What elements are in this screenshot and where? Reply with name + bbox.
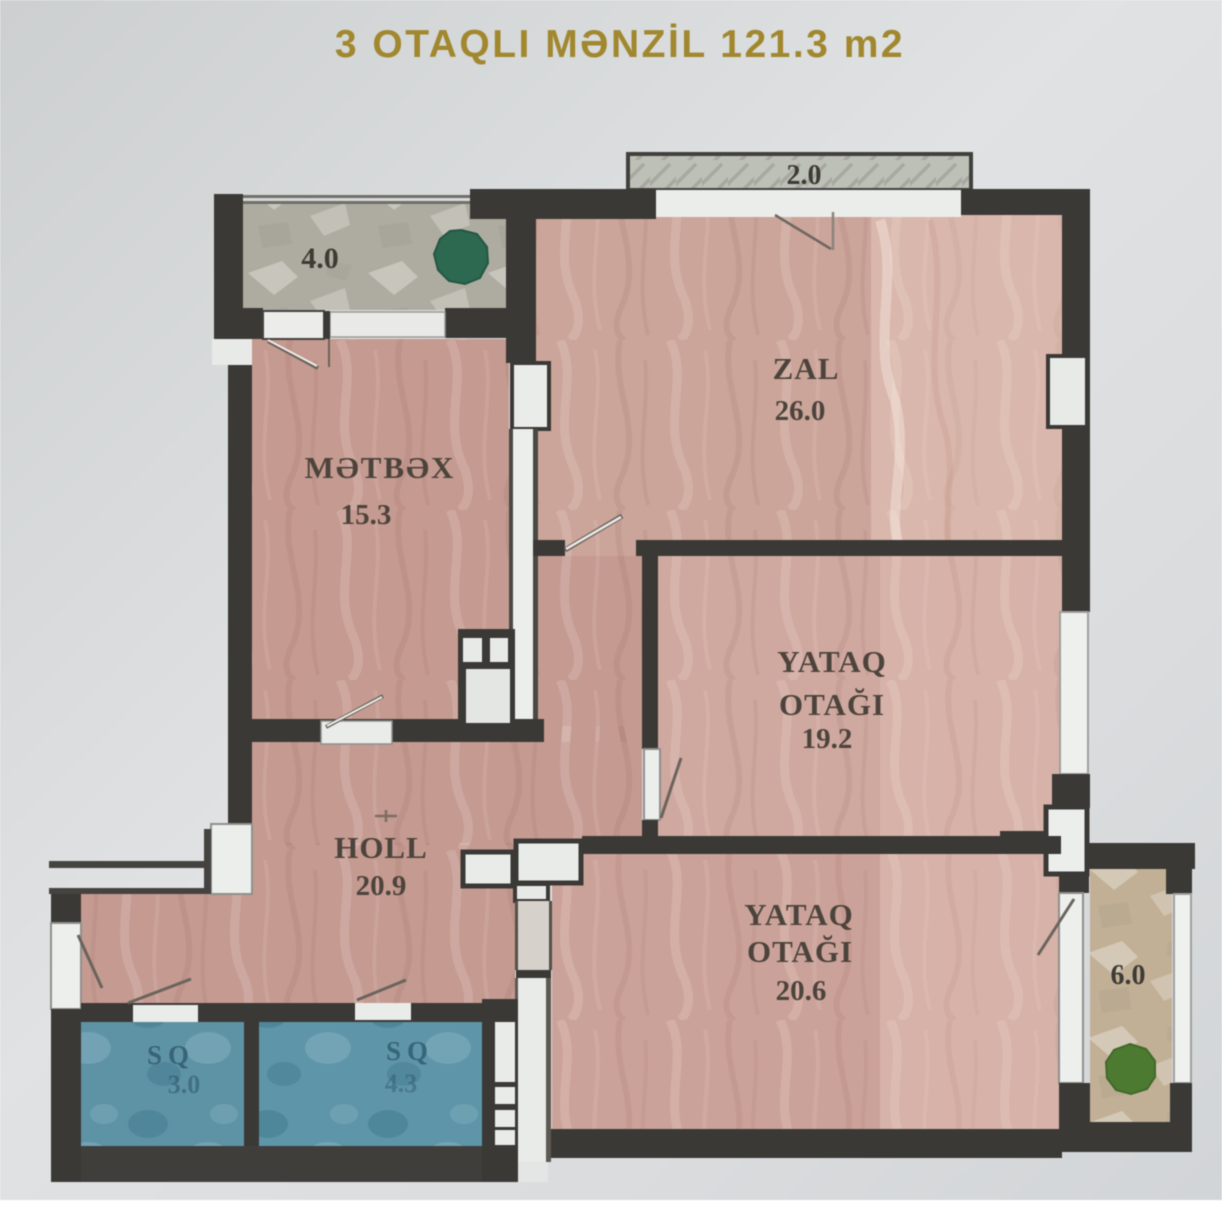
svg-text:4.3: 4.3: [385, 1069, 418, 1098]
svg-text:19.2: 19.2: [802, 723, 853, 755]
svg-text:6.0: 6.0: [1111, 960, 1146, 991]
svg-text:3.0: 3.0: [168, 1070, 201, 1099]
svg-text:MƏTBƏX: MƏTBƏX: [305, 450, 456, 485]
svg-text:20.6: 20.6: [776, 975, 827, 1007]
svg-text:YATAQ: YATAQ: [744, 897, 854, 932]
svg-text:20.9: 20.9: [356, 870, 407, 902]
svg-text:15.3: 15.3: [341, 499, 392, 531]
svg-text:SQ: SQ: [147, 1040, 195, 1070]
svg-text:2.0: 2.0: [787, 160, 822, 191]
svg-text:3 OTAQLI MƏNZİL 121.3 m2: 3 OTAQLI MƏNZİL 121.3 m2: [335, 23, 905, 66]
svg-text:OTAĞI: OTAĞI: [779, 687, 885, 722]
svg-text:SQ: SQ: [386, 1036, 434, 1066]
svg-text:YATAQ: YATAQ: [777, 644, 887, 679]
svg-text:4.0: 4.0: [301, 242, 339, 275]
svg-text:OTAĞI: OTAĞI: [747, 934, 853, 969]
svg-text:HOLL: HOLL: [334, 830, 428, 865]
svg-text:ZAL: ZAL: [773, 351, 840, 386]
svg-text:26.0: 26.0: [775, 395, 826, 427]
